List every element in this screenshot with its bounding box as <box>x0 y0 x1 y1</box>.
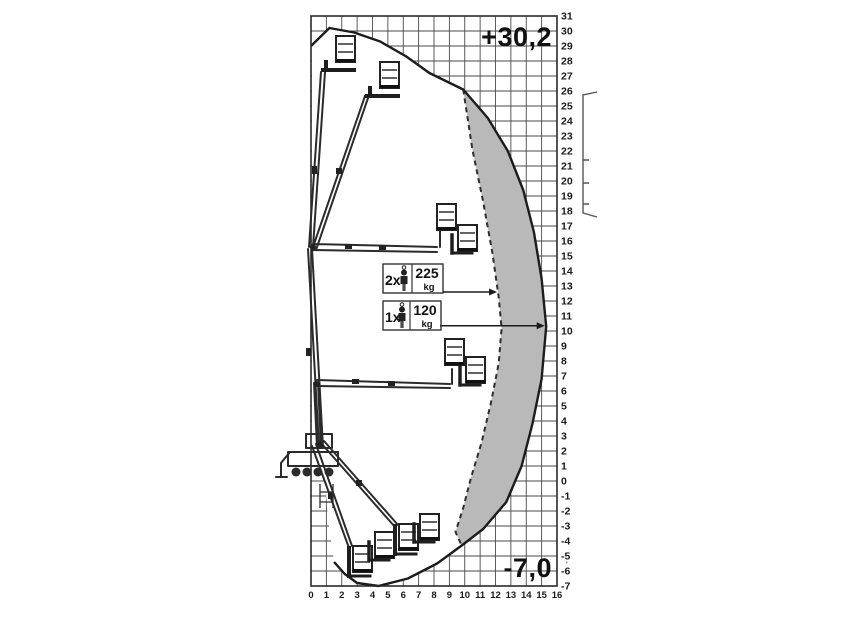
y-axis-tick-label: 18 <box>561 206 573 218</box>
basket-cage <box>380 62 399 88</box>
load-count: 1x <box>385 309 401 325</box>
y-axis-tick-label: 20 <box>561 176 573 188</box>
y-axis-tick-label: 4 <box>561 416 567 428</box>
x-axis-tick-label: 2 <box>339 590 344 601</box>
basket-cage <box>420 514 439 540</box>
x-axis-tick-label: 1 <box>324 590 330 601</box>
min-depth-label: -7,0 <box>503 553 552 583</box>
y-axis-tick-label: 8 <box>561 356 567 368</box>
envelope-diagram-svg: 2x 225 kg 1x 120 kg +30,2 -7,0 ' <box>0 0 860 620</box>
x-axis-tick-label: 14 <box>521 590 532 601</box>
basket-cage <box>437 204 456 230</box>
y-axis-tick-label: -4 <box>561 536 570 548</box>
load-rating-box-120: 1x 120 kg <box>383 301 441 330</box>
y-axis-tick-label: 1 <box>561 461 567 473</box>
max-height-label: +30,2 <box>481 22 552 52</box>
load-unit: kg <box>423 282 434 293</box>
x-axis-tick-label: 6 <box>401 590 406 601</box>
y-axis-tick-label: 12 <box>561 296 573 308</box>
basket-cage <box>458 225 477 251</box>
x-axis-tick-label: 15 <box>536 590 547 601</box>
y-axis-tick-label: 21 <box>561 161 573 173</box>
y-axis-tick-label: 9 <box>561 341 567 353</box>
y-axis-tick-label: 25 <box>561 101 573 113</box>
x-axis-tick-label: 4 <box>370 590 376 601</box>
y-axis-tick-label: 6 <box>561 386 567 398</box>
y-axis-tick-label: 23 <box>561 131 573 143</box>
load-count: 2x <box>385 272 401 288</box>
y-axis-tick-label: 15 <box>561 251 573 263</box>
x-axis-tick-label: 3 <box>354 590 359 601</box>
side-bracket-mark <box>583 92 597 217</box>
y-axis-tick-label: -7 <box>561 581 570 593</box>
y-axis-tick-label: 11 <box>561 311 572 323</box>
load-value: 225 <box>415 265 439 281</box>
platform-basket-icon <box>445 339 464 365</box>
y-axis-tick-label: 3 <box>561 431 567 443</box>
basket-cage <box>466 357 485 383</box>
x-axis-tick-label: 5 <box>385 590 391 601</box>
y-axis-tick-label: 22 <box>561 146 573 158</box>
y-axis-tick-label: 2 <box>561 446 567 458</box>
y-axis-tick-label: -6 <box>561 566 570 578</box>
platform-basket-icon <box>437 204 456 230</box>
x-axis-tick-label: 16 <box>552 590 563 601</box>
y-axis-tick-label: 13 <box>561 281 573 293</box>
y-axis-tick-label: -1 <box>561 491 570 503</box>
y-axis-tick-label: 30 <box>561 26 573 38</box>
y-axis-tick-label: 14 <box>561 266 573 278</box>
y-axis-tick-label: 17 <box>561 221 573 233</box>
y-axis-tick-label: 26 <box>561 86 573 98</box>
y-axis-tick-label: 10 <box>561 326 573 338</box>
diagram-canvas: 2x 225 kg 1x 120 kg +30,2 -7,0 ' <box>0 0 860 620</box>
load-rating-box-225: 2x 225 kg <box>383 264 443 293</box>
x-axis-tick-label: 7 <box>416 590 421 601</box>
x-axis-tick-label: 8 <box>431 590 436 601</box>
basket-cage <box>375 532 394 558</box>
x-axis-tick-label: 11 <box>475 590 486 601</box>
y-axis-tick-label: 16 <box>561 236 573 248</box>
y-axis-tick-label: 28 <box>561 56 573 68</box>
x-axis-tick-label: 0 <box>308 590 313 601</box>
y-axis-tick-label: 5 <box>561 401 567 413</box>
y-axis-tick-label: -3 <box>561 521 570 533</box>
y-axis-tick-label: 19 <box>561 191 573 203</box>
y-axis-tick-label: -2 <box>561 506 570 518</box>
x-axis-tick-label: 10 <box>459 590 470 601</box>
x-axis-tick-label: 12 <box>490 590 501 601</box>
y-axis-tick-label: 29 <box>561 41 573 53</box>
y-axis-tick-label: -5 <box>561 551 570 563</box>
x-axis-tick-label: 9 <box>447 590 452 601</box>
y-axis-tick-label: 0 <box>561 476 567 488</box>
basket-cage <box>445 339 464 365</box>
y-axis-tick-label: 27 <box>561 71 573 83</box>
y-axis-tick-label: 24 <box>561 116 573 128</box>
y-axis-tick-label: 31 <box>561 11 573 23</box>
y-axis-tick-label: 7 <box>561 371 567 383</box>
load-value: 120 <box>413 302 437 318</box>
load-unit: kg <box>421 319 432 330</box>
x-axis-tick-label: 13 <box>506 590 517 601</box>
basket-cage <box>336 36 355 62</box>
